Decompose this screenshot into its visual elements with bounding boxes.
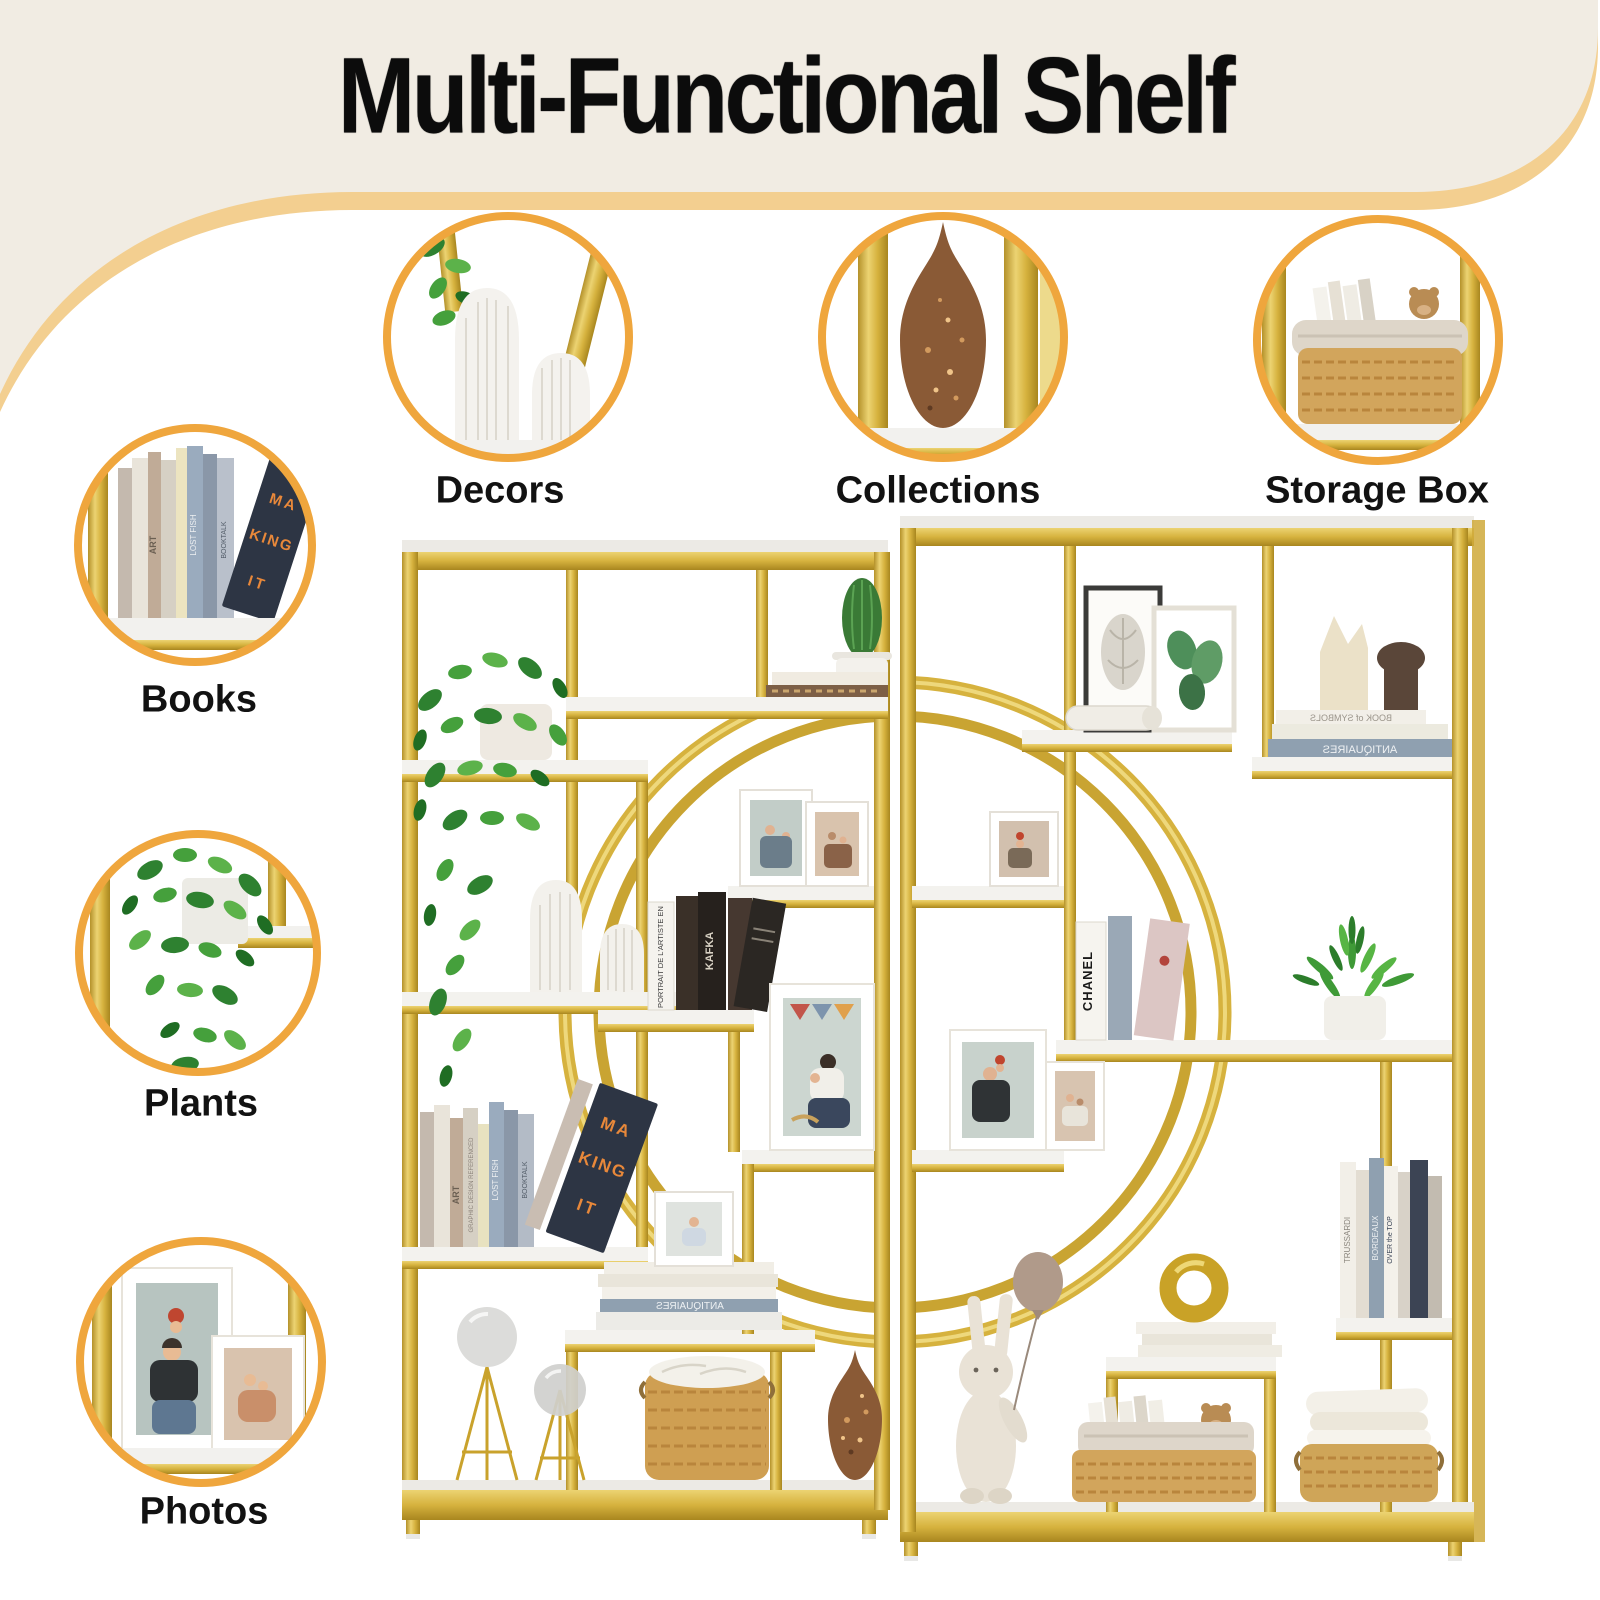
mid-left-books: PORTRAIT DE L'ARTISTE EN KAFKA	[648, 892, 786, 1012]
big-photo-frame	[770, 984, 874, 1150]
product-infographic: ART GRAPHIC DESIGN REFERENCED LOST FISH …	[0, 0, 1600, 1600]
callout-photos-photo	[80, 1241, 326, 1483]
storage-basket-right	[1072, 1392, 1256, 1502]
callout-label-decors: Decors	[436, 470, 565, 513]
svg-text:PORTRAIT DE L'ARTISTE EN: PORTRAIT DE L'ARTISTE EN	[656, 906, 665, 1008]
svg-text:ANTIQUAIRES: ANTIQUAIRES	[656, 1301, 724, 1312]
callout-storage-box-photo	[1256, 219, 1499, 461]
svg-text:ART: ART	[148, 535, 158, 554]
svg-text:ART: ART	[451, 1185, 461, 1204]
svg-text:LOST FISH: LOST FISH	[491, 1159, 500, 1200]
callout-label-photos: Photos	[140, 1491, 269, 1534]
sculptures-and-stack: BOOK of SYMBOLS ANTIQUAIRES	[1268, 616, 1452, 757]
callout-books-photo: ART LOST FISH BOOKTALK MA KING IT	[75, 428, 322, 662]
svg-text:BOOK of SYMBOLS: BOOK of SYMBOLS	[1310, 713, 1392, 723]
svg-text:GRAPHIC DESIGN REFERENCED: GRAPHIC DESIGN REFERENCED	[469, 1137, 475, 1233]
callout-decors-photo	[383, 210, 633, 472]
stacked-books-top	[766, 672, 888, 697]
shelf-illustration: ART GRAPHIC DESIGN REFERENCED LOST FISH …	[0, 0, 1600, 1600]
chanel-books: CHANEL	[1076, 916, 1190, 1041]
round-wicker-basket-left	[641, 1356, 773, 1480]
callout-label-books: Books	[141, 679, 257, 722]
callout-label-plants: Plants	[144, 1083, 258, 1126]
svg-text:LOST FISH: LOST FISH	[189, 514, 198, 555]
gold-ring-sculpture	[1136, 1262, 1282, 1357]
callout-collections-photo	[822, 212, 1064, 462]
hanging-pothos-plant	[411, 650, 571, 1088]
callout-label-storage-box: Storage Box	[1265, 470, 1489, 513]
callout-label-collections: Collections	[836, 470, 1041, 513]
round-basket-towels	[1296, 1388, 1442, 1502]
svg-text:BOOKTALK: BOOKTALK	[221, 521, 228, 559]
bronze-vase	[828, 1350, 882, 1480]
mid-left-photo-frames	[740, 790, 868, 886]
book-row-left: ART GRAPHIC DESIGN REFERENCED LOST FISH …	[420, 1075, 658, 1253]
art-print-frames	[1066, 588, 1234, 730]
top-small-frame-right	[990, 812, 1058, 886]
svg-text:CHANEL: CHANEL	[1080, 951, 1095, 1011]
page-title: Multi-Functional Shelf	[338, 33, 1232, 158]
svg-text:KAFKA: KAFKA	[704, 932, 716, 971]
svg-text:BOOKTALK: BOOKTALK	[522, 1161, 529, 1199]
balloon-decor	[1013, 1252, 1063, 1410]
svg-text:OVER the TOP: OVER the TOP	[1387, 1216, 1394, 1264]
book-row-right: TRUSSARDI BORDEAUX OVER the TOP	[1340, 1158, 1442, 1318]
callout-plants-photo	[79, 834, 324, 1075]
svg-text:TRUSSARDI: TRUSSARDI	[1343, 1217, 1352, 1263]
unit-seam-gap	[890, 640, 900, 1356]
svg-text:BORDEAUX: BORDEAUX	[1371, 1215, 1380, 1261]
potted-plant-right	[1292, 916, 1416, 1040]
seam-post-right	[900, 528, 916, 1532]
svg-text:ANTIQUAIRES: ANTIQUAIRES	[1323, 744, 1398, 756]
